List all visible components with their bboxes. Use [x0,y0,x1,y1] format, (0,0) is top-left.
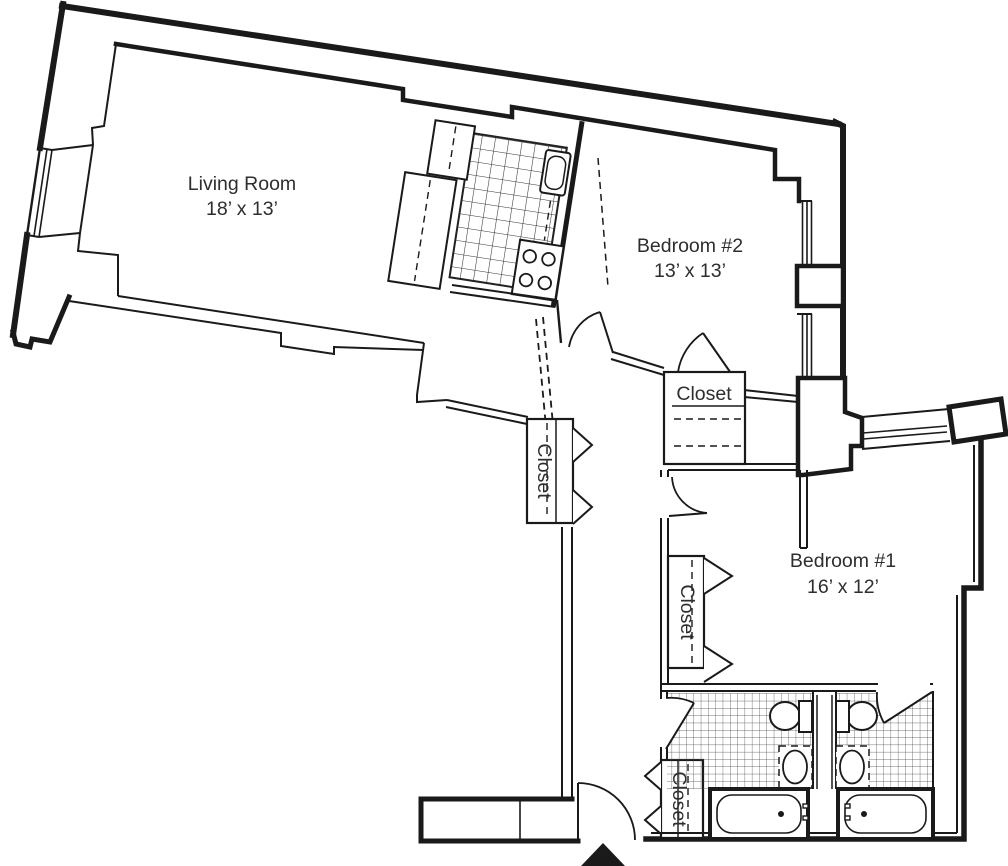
bedroom1-closet-label: Closet [676,584,698,640]
vanity-sink-icon [836,746,869,788]
bedroom1-south-wall [661,684,933,691]
hall-closet-label: Closet [533,443,555,499]
west-interior-wall-upper [92,44,116,145]
bedroom2-south-wall [611,352,664,375]
range-burners-icon [512,240,564,301]
south-corner-jog [417,343,447,402]
bedroom-1-dims: 16’ x 12’ [807,576,879,598]
living-room-label: Living Room [188,173,296,195]
bifold-door-icon [645,806,661,834]
bifold-door-icon [573,428,592,462]
bifold-door-icon [704,646,732,682]
bedroom2-closet-label: Closet [676,383,732,405]
entry-door [578,783,635,840]
kitchen-sink-icon [540,150,571,196]
bifold-door-icon [704,558,732,594]
bathtub-icon [710,789,808,839]
bifold-door-icon [645,762,661,790]
bedroom-1-label: Bedroom #1 [790,550,896,572]
door-swing-icon [669,477,707,516]
bathroom-2 [836,691,933,839]
entry-arrow-icon [581,843,625,866]
kitchen-overhead-dashed [598,158,608,287]
floor-plan-drawing: Living Room 18’ x 13’ [0,0,1008,866]
window-icon [797,314,812,379]
west-interior-wall-lower [78,233,118,296]
kitchen-wall-stub [557,300,561,343]
living-room-dims: 18’ x 13’ [206,198,278,220]
bedroom2-southeast-wall [744,390,798,402]
cased-opening-dashed [536,317,553,427]
west-wall-upper [40,4,63,148]
south-wall-outer-line [69,301,424,354]
vanity-sink-icon [779,746,812,788]
kitchen-area [388,98,582,307]
chase-inner-lines [817,695,832,789]
hall-closet: Closet [527,419,592,524]
southwest-corner [13,297,69,347]
toilet-icon [770,701,812,732]
bedroom-2-dims: 13’ x 13’ [654,260,726,282]
window-icon [27,145,93,237]
window-pier [797,266,843,306]
upper-cabinet-icon [427,120,475,180]
south-wall-inner-line [118,296,424,343]
bedroom-2-label: Bedroom #2 [637,235,743,257]
window-icon [862,409,950,449]
bifold-door-icon [573,490,592,524]
wall-chunk [798,378,862,475]
hall-west-wall [562,527,572,799]
wall-stub [800,470,807,548]
west-wall-lower [13,235,27,335]
hall-slant-wall-a [447,400,528,417]
living-room-area: Living Room 18’ x 13’ [27,44,528,424]
window-icon [797,201,812,265]
corner-block [949,399,1006,442]
floor-plan-page: Living Room 18’ x 13’ [0,0,1008,866]
bedroom-1-closet: Closet [668,556,732,682]
bedroom1-north-wall [668,464,797,470]
hall-slant-wall-b [446,407,527,424]
door-swing-icon [578,783,635,840]
entry-nook-wall [421,799,578,841]
door-swing-icon [569,312,613,353]
bathtub-icon [838,789,933,839]
toilet-icon [836,701,877,732]
bedroom-2-closet: Closet [664,333,745,464]
